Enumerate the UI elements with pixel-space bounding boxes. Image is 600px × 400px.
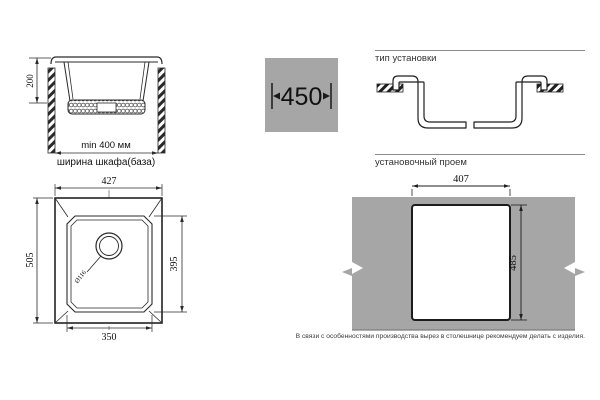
dim-arrow-left <box>55 151 61 155</box>
sink-section-left <box>393 76 466 128</box>
dim-arrow-down <box>35 97 39 103</box>
depth-200-label: 200 <box>25 74 35 88</box>
width-450-label: 450 <box>281 83 323 111</box>
cutout-drawing: 407 485 <box>340 168 592 336</box>
cutout-rule <box>375 154 585 155</box>
overall-width-badge: 450 <box>265 58 338 132</box>
cabinet-wall-right-hatch <box>158 68 165 153</box>
installation-type-rule <box>375 50 585 51</box>
dim-overall-width: 427 <box>55 176 162 196</box>
cabinet-cross-section-drawing: 200 min 400 мм ширина шкафа(база) <box>25 42 210 168</box>
dim-arrow-right <box>152 151 158 155</box>
installation-type-drawing <box>374 70 586 152</box>
dim-bowl-depth: 200 <box>25 58 51 103</box>
dim-arrow-up <box>35 58 39 64</box>
spec-sheet: 200 min 400 мм ширина шкафа(база) 450 ти… <box>0 0 600 400</box>
sink-profile <box>51 57 162 114</box>
dim-overall-depth: 505 <box>25 198 53 323</box>
cutout-485-label: 485 <box>508 255 519 271</box>
min-400-label: min 400 мм <box>81 140 131 151</box>
sink-top-view-drawing: Ø116 427 505 395 <box>25 172 230 344</box>
dim-cutout-width: 407 <box>412 174 510 196</box>
bowl-350-label: 350 <box>102 332 117 343</box>
drain-outline <box>97 103 116 112</box>
cutout-heading: установочный проем <box>375 158 467 168</box>
cutout-rect <box>412 205 510 320</box>
production-note: В связи с особенностями производства выр… <box>296 333 585 340</box>
width-427-label: 427 <box>102 176 117 187</box>
sink-section-right <box>474 76 547 128</box>
depth-505-label: 505 <box>25 253 36 268</box>
dim-min-cabinet-width: min 400 мм ширина шкафа(база) <box>55 140 158 168</box>
cabinet-wall-left-hatch <box>48 68 55 153</box>
cabinet-width-caption: ширина шкафа(база) <box>57 156 155 168</box>
cutout-407-label: 407 <box>453 174 469 185</box>
installation-type-heading: тип установки <box>375 54 436 64</box>
bowl-395-label: 395 <box>169 257 180 272</box>
bowl-outline <box>67 216 152 312</box>
